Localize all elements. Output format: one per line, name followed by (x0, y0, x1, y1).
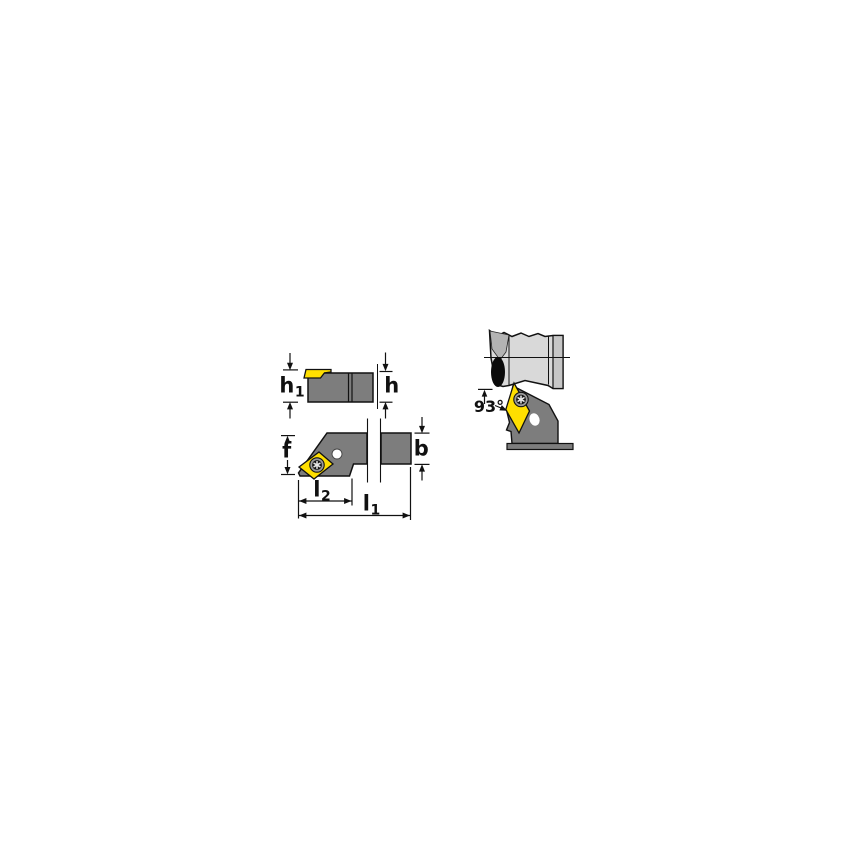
clamp-hole (332, 449, 342, 459)
diagram-canvas: h1 h f b l2 l1 93° (0, 0, 854, 854)
dim-label-l1: l1 (363, 493, 380, 514)
dim-label-l2: l2 (313, 479, 330, 500)
dim-label-f: f (282, 441, 292, 462)
workpiece-collar (553, 336, 563, 389)
workpiece-end-face (491, 357, 505, 387)
top-view (281, 417, 430, 520)
dim-label-b: b (414, 438, 430, 459)
dim-label-h1: h1 (279, 376, 304, 397)
front-view (478, 331, 573, 450)
angle-label: 93° (474, 399, 504, 415)
dim-label-h: h (384, 376, 399, 397)
top-view-shank-end (381, 433, 411, 464)
tool-drawing-svg (0, 0, 854, 854)
holder-shank-bar (507, 444, 573, 450)
